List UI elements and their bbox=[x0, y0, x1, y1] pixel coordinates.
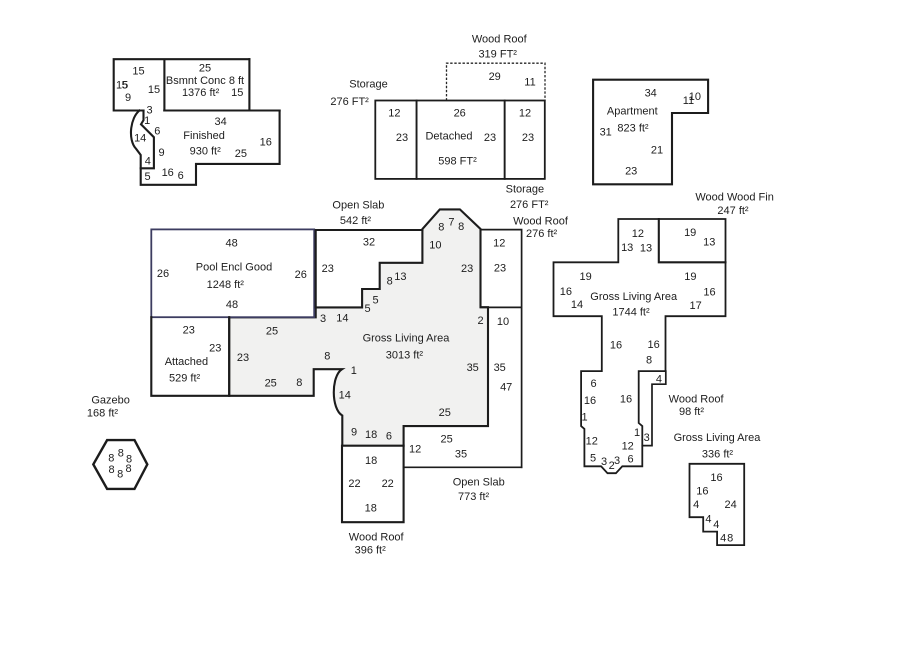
svg-text:5: 5 bbox=[365, 303, 371, 315]
svg-text:14: 14 bbox=[134, 133, 146, 145]
svg-text:26: 26 bbox=[454, 108, 466, 120]
svg-text:8: 8 bbox=[727, 533, 733, 545]
svg-text:35: 35 bbox=[494, 362, 506, 374]
svg-text:10: 10 bbox=[429, 240, 441, 252]
svg-text:16: 16 bbox=[696, 486, 708, 498]
svg-text:16: 16 bbox=[584, 395, 596, 407]
svg-text:Open Slab: Open Slab bbox=[453, 477, 505, 489]
svg-text:3013 ft²: 3013 ft² bbox=[386, 350, 424, 362]
svg-text:Bsmnt Conc 8 ft: Bsmnt Conc 8 ft bbox=[166, 75, 244, 87]
svg-text:13: 13 bbox=[621, 242, 633, 254]
svg-text:32: 32 bbox=[363, 237, 375, 249]
svg-text:35: 35 bbox=[455, 449, 467, 461]
svg-text:8: 8 bbox=[117, 468, 123, 480]
svg-text:Wood Roof: Wood Roof bbox=[513, 216, 569, 228]
svg-text:336 ft²: 336 ft² bbox=[702, 448, 734, 460]
svg-text:930 ft²: 930 ft² bbox=[190, 146, 222, 158]
svg-text:23: 23 bbox=[522, 132, 534, 144]
svg-text:12: 12 bbox=[519, 108, 531, 120]
svg-text:13: 13 bbox=[640, 242, 652, 254]
svg-text:Wood Roof: Wood Roof bbox=[669, 394, 725, 406]
svg-text:23: 23 bbox=[322, 263, 334, 275]
svg-text:7: 7 bbox=[448, 216, 454, 228]
svg-text:15: 15 bbox=[148, 84, 160, 96]
svg-text:8: 8 bbox=[646, 355, 652, 367]
svg-text:10: 10 bbox=[497, 316, 509, 328]
svg-text:8: 8 bbox=[108, 453, 114, 465]
svg-text:823 ft²: 823 ft² bbox=[617, 123, 649, 135]
svg-text:1744 ft²: 1744 ft² bbox=[612, 307, 650, 319]
svg-text:16: 16 bbox=[260, 136, 272, 148]
svg-text:Storage: Storage bbox=[506, 184, 545, 196]
svg-text:25: 25 bbox=[235, 148, 247, 160]
svg-text:Detached: Detached bbox=[425, 131, 472, 143]
svg-text:5: 5 bbox=[590, 453, 596, 465]
svg-text:3: 3 bbox=[644, 432, 650, 444]
svg-text:247 ft²: 247 ft² bbox=[717, 205, 749, 217]
svg-text:16: 16 bbox=[710, 472, 722, 484]
svg-text:14: 14 bbox=[339, 390, 351, 402]
svg-text:3: 3 bbox=[614, 455, 620, 467]
svg-text:276 FT²: 276 FT² bbox=[510, 199, 549, 211]
svg-text:276 FT²: 276 FT² bbox=[330, 96, 369, 108]
svg-text:5: 5 bbox=[145, 171, 151, 183]
svg-text:Finished: Finished bbox=[183, 130, 225, 142]
svg-text:12: 12 bbox=[622, 441, 634, 453]
svg-text:6: 6 bbox=[154, 125, 160, 137]
svg-text:15: 15 bbox=[231, 87, 243, 99]
svg-text:6: 6 bbox=[627, 454, 633, 466]
svg-text:25: 25 bbox=[199, 62, 211, 74]
svg-text:13: 13 bbox=[394, 271, 406, 283]
svg-text:8: 8 bbox=[387, 275, 393, 287]
svg-text:Gross Living Area: Gross Living Area bbox=[590, 291, 678, 303]
svg-text:16: 16 bbox=[162, 167, 174, 179]
svg-text:Wood Roof: Wood Roof bbox=[349, 532, 405, 544]
svg-text:1376 ft²: 1376 ft² bbox=[182, 87, 220, 99]
svg-text:4: 4 bbox=[705, 513, 711, 525]
svg-text:17: 17 bbox=[689, 300, 701, 312]
svg-text:Wood Wood Fin: Wood Wood Fin bbox=[695, 192, 773, 204]
svg-text:25: 25 bbox=[265, 378, 277, 390]
svg-text:12: 12 bbox=[493, 238, 505, 250]
svg-text:Apartment: Apartment bbox=[607, 105, 658, 117]
svg-text:34: 34 bbox=[214, 116, 226, 128]
svg-text:25: 25 bbox=[439, 407, 451, 419]
svg-text:18: 18 bbox=[365, 503, 377, 515]
svg-text:23: 23 bbox=[625, 166, 637, 178]
svg-text:24: 24 bbox=[724, 499, 736, 511]
svg-text:5: 5 bbox=[372, 295, 378, 307]
svg-text:23: 23 bbox=[461, 263, 473, 275]
svg-text:16: 16 bbox=[620, 393, 632, 405]
svg-text:Gross Living Area: Gross Living Area bbox=[363, 333, 451, 345]
svg-text:8: 8 bbox=[296, 377, 302, 389]
svg-text:Open Slab: Open Slab bbox=[332, 200, 384, 212]
svg-text:26: 26 bbox=[157, 268, 169, 280]
svg-text:8: 8 bbox=[324, 350, 330, 362]
svg-text:Storage: Storage bbox=[349, 79, 388, 91]
svg-text:21: 21 bbox=[651, 144, 663, 156]
svg-text:Attached: Attached bbox=[165, 356, 208, 368]
svg-text:12: 12 bbox=[632, 228, 644, 240]
svg-text:773 ft²: 773 ft² bbox=[458, 491, 490, 503]
svg-text:3: 3 bbox=[320, 313, 326, 325]
svg-text:23: 23 bbox=[484, 132, 496, 144]
svg-text:1: 1 bbox=[351, 365, 357, 377]
svg-text:9: 9 bbox=[125, 92, 131, 104]
svg-text:4: 4 bbox=[145, 156, 151, 168]
svg-text:3: 3 bbox=[601, 456, 607, 468]
svg-text:15: 15 bbox=[132, 66, 144, 78]
svg-text:1: 1 bbox=[634, 427, 640, 439]
svg-text:48: 48 bbox=[225, 237, 237, 249]
svg-text:4: 4 bbox=[693, 499, 699, 511]
svg-text:9: 9 bbox=[351, 427, 357, 439]
svg-text:2: 2 bbox=[477, 315, 483, 327]
svg-text:25: 25 bbox=[440, 433, 452, 445]
svg-text:12: 12 bbox=[586, 436, 598, 448]
svg-text:542 ft²: 542 ft² bbox=[340, 215, 372, 227]
svg-text:23: 23 bbox=[209, 343, 221, 355]
svg-text:8: 8 bbox=[118, 447, 124, 459]
svg-text:319 FT²: 319 FT² bbox=[478, 48, 517, 60]
svg-text:98 ft²: 98 ft² bbox=[679, 406, 704, 418]
svg-text:10: 10 bbox=[689, 91, 701, 103]
svg-text:18: 18 bbox=[365, 429, 377, 441]
svg-text:34: 34 bbox=[645, 88, 657, 100]
svg-text:1: 1 bbox=[144, 115, 150, 127]
svg-text:Gross Living Area: Gross Living Area bbox=[674, 432, 762, 444]
svg-text:598 FT²: 598 FT² bbox=[438, 156, 477, 168]
svg-text:Gazebo: Gazebo bbox=[91, 395, 130, 407]
svg-text:12: 12 bbox=[388, 108, 400, 120]
svg-text:48: 48 bbox=[226, 299, 238, 311]
svg-text:16: 16 bbox=[647, 339, 659, 351]
svg-text:8: 8 bbox=[458, 221, 464, 233]
svg-text:529 ft²: 529 ft² bbox=[169, 373, 201, 385]
svg-text:19: 19 bbox=[684, 227, 696, 239]
svg-text:18: 18 bbox=[365, 455, 377, 467]
svg-text:23: 23 bbox=[396, 132, 408, 144]
svg-text:16: 16 bbox=[560, 286, 572, 298]
svg-text:35: 35 bbox=[467, 362, 479, 374]
svg-text:22: 22 bbox=[382, 478, 394, 490]
svg-text:25: 25 bbox=[266, 326, 278, 338]
svg-text:Wood Roof: Wood Roof bbox=[472, 33, 528, 45]
svg-text:9: 9 bbox=[158, 147, 164, 159]
svg-text:11: 11 bbox=[524, 77, 535, 89]
svg-text:6: 6 bbox=[386, 431, 392, 443]
svg-text:31: 31 bbox=[600, 127, 612, 139]
svg-text:8: 8 bbox=[108, 464, 114, 476]
svg-text:4: 4 bbox=[713, 519, 719, 531]
svg-text:23: 23 bbox=[183, 325, 195, 337]
svg-text:26: 26 bbox=[295, 269, 307, 281]
svg-text:22: 22 bbox=[348, 478, 360, 490]
svg-text:6: 6 bbox=[590, 378, 596, 390]
svg-text:19: 19 bbox=[684, 271, 696, 283]
svg-text:23: 23 bbox=[237, 352, 249, 364]
svg-text:276 ft²: 276 ft² bbox=[526, 228, 558, 240]
svg-text:4: 4 bbox=[720, 533, 726, 545]
svg-text:19: 19 bbox=[579, 271, 591, 283]
svg-text:16: 16 bbox=[703, 287, 715, 299]
svg-text:Pool Encl Good: Pool Encl Good bbox=[196, 261, 272, 273]
svg-text:168 ft²: 168 ft² bbox=[87, 407, 119, 419]
svg-text:8: 8 bbox=[125, 463, 131, 475]
svg-text:13: 13 bbox=[703, 237, 715, 249]
svg-text:23: 23 bbox=[494, 262, 506, 274]
svg-text:8: 8 bbox=[438, 221, 444, 233]
svg-text:16: 16 bbox=[610, 340, 622, 352]
svg-text:14: 14 bbox=[336, 313, 348, 325]
svg-text:396 ft²: 396 ft² bbox=[355, 545, 387, 557]
svg-text:5: 5 bbox=[122, 80, 128, 92]
svg-text:12: 12 bbox=[409, 444, 421, 456]
svg-text:6: 6 bbox=[178, 170, 184, 182]
svg-text:14: 14 bbox=[571, 299, 583, 311]
svg-text:29: 29 bbox=[489, 71, 501, 83]
svg-text:1248 ft²: 1248 ft² bbox=[207, 279, 245, 291]
svg-text:1: 1 bbox=[581, 412, 587, 424]
svg-text:47: 47 bbox=[500, 382, 512, 394]
svg-text:4: 4 bbox=[656, 374, 662, 386]
